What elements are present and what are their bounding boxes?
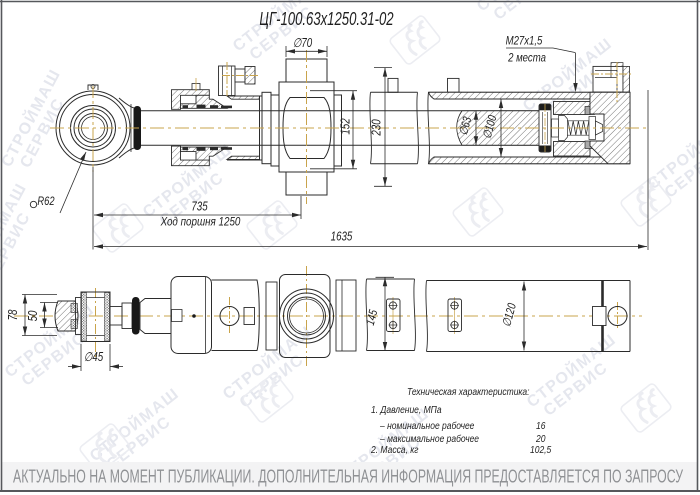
svg-text:50: 50	[27, 310, 40, 322]
svg-text:Техническая характеристика:: Техническая характеристика:	[407, 386, 530, 397]
svg-text:∅45: ∅45	[84, 351, 104, 364]
svg-text:ЦГ-100.63х1250.31-02: ЦГ-100.63х1250.31-02	[259, 9, 393, 30]
svg-text:М27х1,5: М27х1,5	[506, 35, 544, 48]
svg-text:2 места: 2 места	[507, 52, 546, 65]
svg-text:152: 152	[339, 118, 352, 135]
svg-text:АКТУАЛЬНО НА МОМЕНТ ПУБЛИКАЦИИ: АКТУАЛЬНО НА МОМЕНТ ПУБЛИКАЦИИ. ДОПОЛНИТ…	[13, 467, 683, 487]
svg-text:102,5: 102,5	[530, 444, 552, 455]
svg-text:16: 16	[536, 420, 546, 431]
svg-text:735: 735	[191, 200, 208, 213]
svg-text:2. Масса, кг: 2. Масса, кг	[370, 444, 419, 455]
svg-text:– максимальное рабочее: – максимальное рабочее	[379, 433, 479, 444]
svg-text:20: 20	[535, 433, 546, 444]
svg-text:1. Давление, МПа: 1. Давление, МПа	[371, 404, 442, 415]
svg-text:R62: R62	[37, 195, 54, 208]
svg-text:– номинальное рабочее: – номинальное рабочее	[379, 420, 474, 431]
svg-text:230: 230	[370, 119, 383, 137]
svg-text:78: 78	[7, 309, 20, 321]
svg-text:Ход поршня 1250: Ход поршня 1250	[160, 216, 241, 229]
svg-text:∅70: ∅70	[293, 37, 313, 50]
svg-text:1635: 1635	[331, 230, 353, 243]
